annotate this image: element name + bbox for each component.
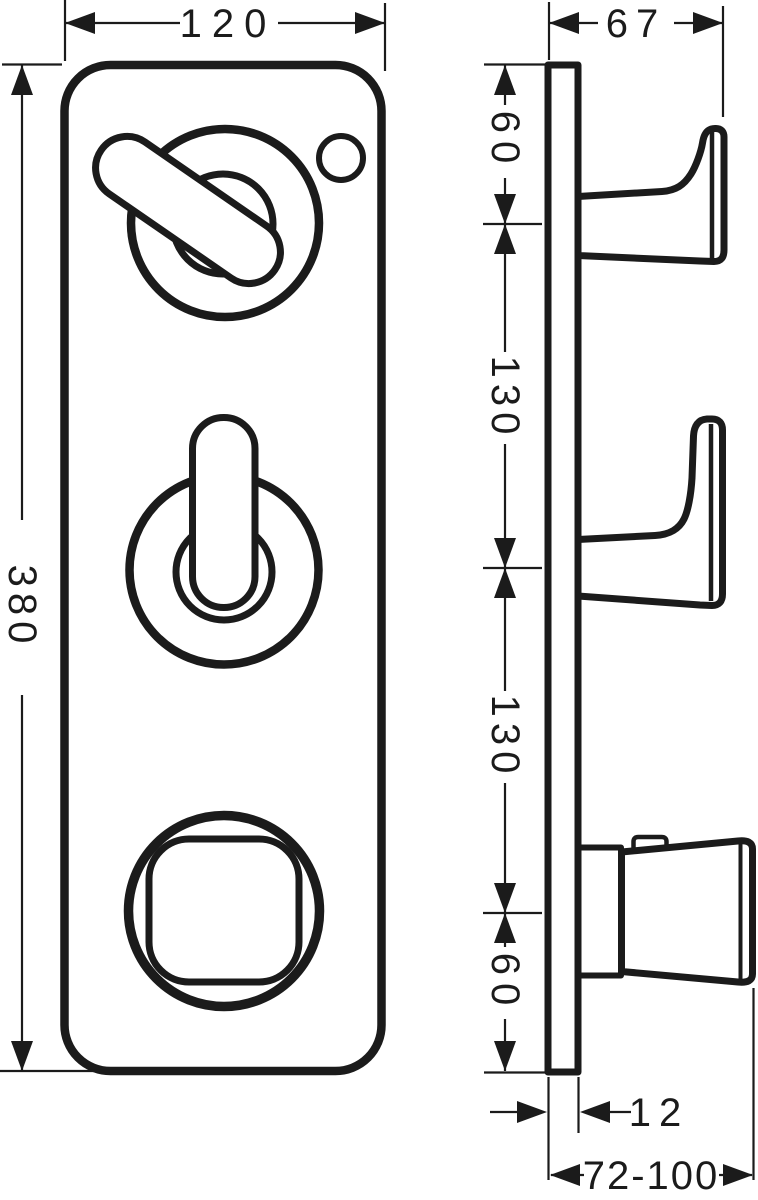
dim-installation-depth-label: 72-100 bbox=[583, 1154, 720, 1198]
thermostat-knob-side bbox=[578, 837, 753, 982]
dim-front-width-label: 120 bbox=[180, 2, 277, 46]
dim-top-offset-label: 60 bbox=[483, 111, 527, 172]
dim-span-lower-label: 130 bbox=[483, 695, 527, 780]
dim-span-upper-label: 130 bbox=[483, 356, 527, 441]
dimension-drawing: 120 380 67 bbox=[0, 0, 758, 1200]
knob-body-side bbox=[622, 841, 753, 982]
drawing-canvas: 120 380 67 bbox=[0, 0, 758, 1200]
thermostat-knob-front bbox=[129, 816, 320, 1007]
indicator-button bbox=[319, 136, 363, 180]
knob-base-side bbox=[578, 848, 621, 976]
middle-lever-grip bbox=[193, 418, 256, 608]
dim-side-depth-label: 67 bbox=[606, 2, 667, 46]
dim-front-height-label: 380 bbox=[0, 565, 44, 650]
knob-square-grip bbox=[149, 839, 299, 982]
front-view bbox=[65, 65, 382, 1071]
dim-bottom-offset-label: 60 bbox=[483, 953, 527, 1014]
dim-plate-thickness-label: 12 bbox=[629, 1091, 690, 1135]
trim-plate-side bbox=[548, 65, 578, 1072]
side-view bbox=[548, 65, 753, 1072]
